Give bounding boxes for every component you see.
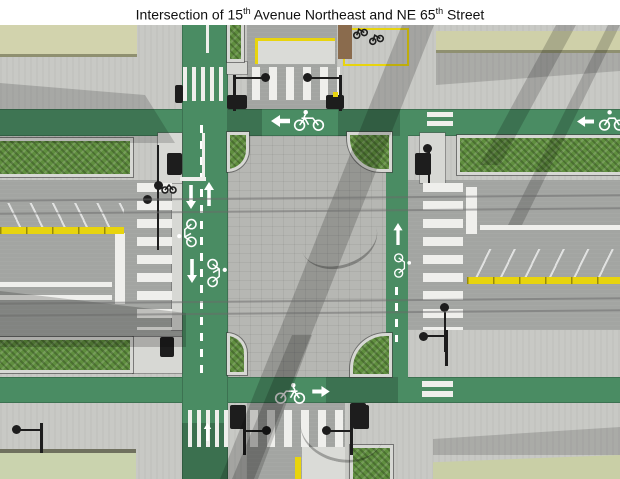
crosswalk-west: [137, 183, 172, 330]
planter-hedge-east-north: [457, 135, 620, 175]
street-lamp-icon: [143, 195, 152, 204]
title-part1: Intersection of 15: [136, 7, 243, 23]
title-sup1: th: [243, 6, 251, 16]
signal-cabinet-north-2: [326, 95, 344, 109]
rendering-page: Intersection of 15th Avenue Northeast an…: [0, 0, 620, 479]
planter-hedge-south-leg-east: [350, 445, 393, 479]
title-part3: Street: [443, 7, 484, 23]
parking-edge-yellow-east: [467, 277, 620, 284]
stop-bar-westleg: [115, 233, 125, 304]
building-bottom-left: [0, 449, 136, 479]
street-lamp-icon: [423, 144, 432, 153]
median-island-west: [172, 180, 182, 330]
angled-parking-west: [0, 203, 124, 229]
lane-line-west-2: [0, 295, 112, 300]
building-top-left: [0, 25, 137, 57]
ramp-yellow-edge-top: [255, 38, 335, 41]
planter-hedge-west-south: [0, 337, 133, 373]
building-bottom-right: [433, 455, 620, 479]
crosswalk-north-over-cycletrack: [183, 67, 228, 101]
bike-lane-eastbound-bottom: [0, 377, 620, 403]
cycletrack-stop-bar: [180, 177, 206, 181]
planter-hedge-west-north: [0, 138, 133, 177]
building-top-right: [436, 31, 620, 53]
planter-hedge-north-leg: [227, 25, 244, 62]
yellow-curb-south-leg: [295, 457, 301, 479]
angled-parking-east: [467, 249, 620, 278]
arrow-up-icon: [204, 182, 214, 206]
cycletrack-edgeline-north: [206, 25, 209, 53]
arrow-left-icon: [577, 116, 594, 127]
bike-symbol-eastbound-icon: [274, 382, 306, 405]
page-title: Intersection of 15th Avenue Northeast an…: [0, 0, 620, 25]
lane-line-west-1: [0, 282, 112, 287]
bike-lane-east-dashes: [395, 287, 398, 342]
arrow-down-icon: [186, 185, 196, 209]
arrow-up-icon: [393, 223, 403, 245]
signal-cabinet-north-1: [227, 95, 247, 109]
ramp-yellow-edge-left: [255, 38, 258, 64]
traffic-signal-se-icon: [350, 403, 366, 425]
mast-arm-north-2: [310, 77, 340, 79]
lamp-pole-east: [444, 312, 446, 352]
yield-bar-bottom-1: [422, 381, 453, 387]
traffic-signal-sw-icon: [160, 337, 174, 357]
street-lamp-icon: [440, 303, 449, 312]
yield-bar-bottom-2: [422, 391, 453, 397]
lamp-pole-nw: [157, 145, 159, 250]
street-lamp-icon: [261, 73, 270, 82]
cycletrack-centerline-solid: [202, 133, 205, 179]
parking-edge-yellow-west: [0, 227, 124, 234]
bike-symbol-southbound-icon: [176, 224, 208, 248]
raised-ramp-north-leg: [255, 38, 335, 64]
yield-bar-top-1: [427, 112, 453, 117]
arrow-right-icon: [312, 386, 330, 397]
street-lamp-icon: [322, 426, 331, 435]
bike-symbol-northbound-icon: [383, 253, 413, 274]
mast-arm-south-2: [330, 430, 352, 432]
signal-island-sw: [133, 337, 182, 373]
lane-line-east: [480, 225, 620, 230]
parked-bike-icon: [161, 183, 177, 194]
street-lamp-icon: [262, 426, 271, 435]
bike-symbol-westbound-icon: [293, 109, 325, 132]
bike-symbol-northbound-icon: [194, 258, 228, 282]
signal-cabinet-south-1: [230, 405, 246, 429]
push-button-sign: [333, 92, 338, 97]
lamp-pole-sw: [40, 423, 43, 453]
stop-bar-eastleg: [466, 187, 477, 234]
title-sup2: th: [436, 6, 444, 16]
signal-cabinet-west-track: [175, 85, 183, 103]
street-lamp-icon: [303, 73, 312, 82]
planter-cap-north-leg: [227, 62, 247, 74]
lamp-pole-ne-island: [428, 150, 430, 183]
traffic-signal-nw-icon: [167, 153, 182, 175]
title-part2: Avenue Northeast and NE 65: [251, 7, 436, 23]
arrow-left-icon: [271, 115, 290, 127]
mast-arm-sw: [19, 429, 41, 431]
bike-symbol-westbound-icon: [598, 109, 620, 132]
intersection-rendering: [0, 25, 620, 479]
yield-bar-top-2: [427, 121, 453, 126]
green-shade-se: [326, 377, 398, 403]
landing-south-leg: [302, 447, 345, 479]
arrow-up-icon: [203, 423, 212, 441]
